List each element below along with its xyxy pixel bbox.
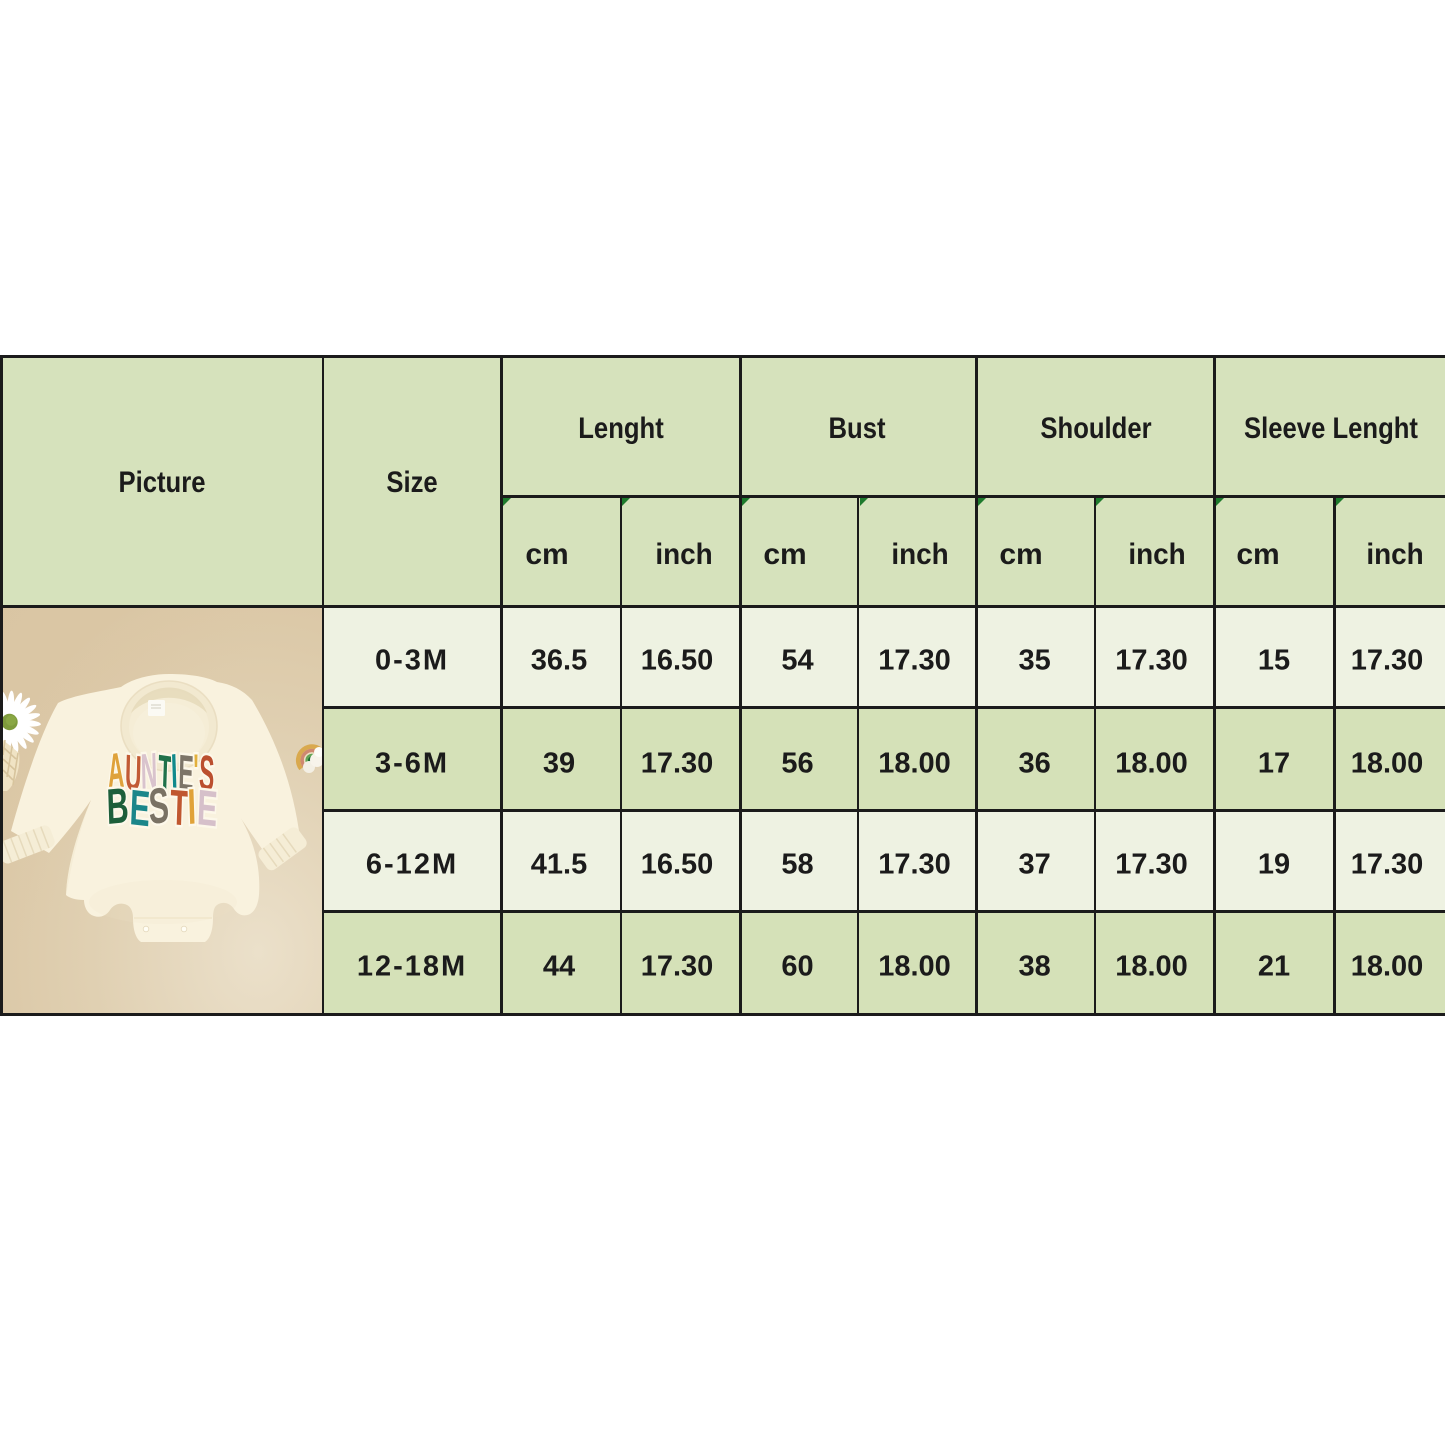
svg-text:BESTIE: BESTIE	[106, 777, 219, 837]
